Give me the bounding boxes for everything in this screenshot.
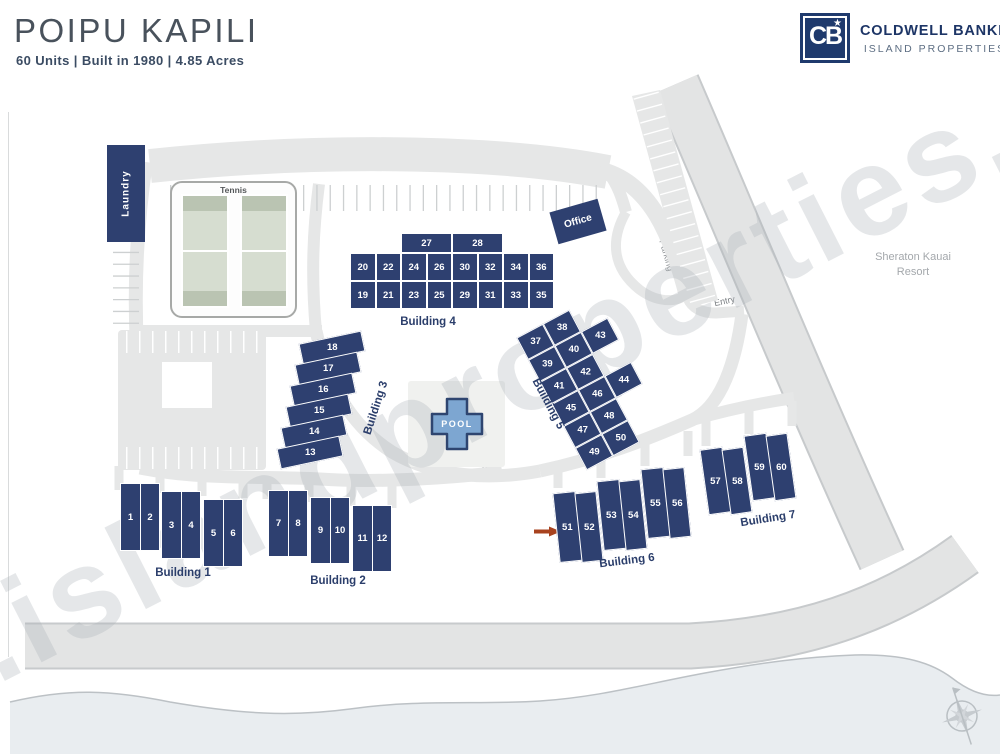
unit-number: 29 [459,290,470,301]
unit-number: 24 [408,262,419,273]
unit-28: 28 [452,233,503,253]
unit-7: 7 [268,490,289,557]
unit-number: 32 [485,262,496,273]
buildings-layer: 1234567891011125152535455565758596018171… [0,0,1000,754]
unit-number: 43 [595,330,606,341]
unit-9: 9 [310,497,331,564]
unit-number: 11 [357,533,367,544]
unit-1: 1 [120,483,141,551]
unit-number: 53 [606,510,617,521]
unit-number: 42 [580,366,591,377]
unit-number: 44 [618,374,629,385]
unit-number: 8 [295,518,300,529]
unit-number: 20 [357,262,368,273]
unit-number: 51 [562,522,573,533]
unit-5: 5 [203,499,224,567]
unit-number: 58 [732,476,743,487]
unit-number: 34 [510,262,521,273]
unit-number: 4 [188,520,193,531]
unit-6: 6 [223,499,243,567]
unit-22: 22 [376,253,402,281]
unit-number: 56 [672,498,683,509]
unit-number: 46 [592,388,603,399]
unit-number: 45 [565,403,576,414]
site-map: POIPU KAPILI 60 Units | Built in 1980 | … [0,0,1000,754]
unit-number: 21 [383,290,394,301]
unit-32: 32 [478,253,504,281]
unit-number: 48 [604,411,615,422]
unit-number: 57 [710,476,721,487]
unit-number: 2 [147,512,152,523]
unit-number: 47 [577,425,588,436]
building4-label: Building 4 [400,316,456,328]
unit-number: 17 [322,363,333,374]
unit-31: 31 [478,281,504,309]
unit-number: 55 [650,498,661,509]
unit-number: 14 [309,426,320,437]
unit-number: 60 [776,462,787,473]
unit-23: 23 [401,281,427,309]
unit-number: 36 [536,262,547,273]
unit-number: 31 [485,290,496,301]
unit-number: 28 [472,238,483,249]
building2-label: Building 2 [310,575,366,587]
unit-19: 19 [350,281,376,309]
unit-27: 27 [401,233,452,253]
unit-35: 35 [529,281,555,309]
unit-number: 54 [628,510,639,521]
unit-number: 59 [754,462,765,473]
unit-number: 52 [584,522,595,533]
unit-2: 2 [140,483,160,551]
unit-number: 39 [542,358,553,369]
unit-12: 12 [372,505,392,572]
unit-number: 37 [530,336,541,347]
unit-number: 25 [434,290,445,301]
unit-number: 23 [408,290,419,301]
unit-number: 18 [327,342,338,353]
unit-number: 16 [318,384,329,395]
unit-3: 3 [161,491,182,559]
unit-number: 19 [357,290,368,301]
unit-number: 22 [383,262,394,273]
unit-number: 15 [313,405,324,416]
unit-number: 26 [434,262,445,273]
unit-10: 10 [330,497,350,564]
unit-4: 4 [181,491,201,559]
unit-24: 24 [401,253,427,281]
unit-29: 29 [452,281,478,309]
unit-33: 33 [503,281,529,309]
unit-number: 6 [230,528,235,539]
unit-number: 33 [510,290,521,301]
unit-number: 38 [557,322,568,333]
unit-number: 49 [589,447,600,458]
unit-number: 13 [304,447,315,458]
unit-34: 34 [503,253,529,281]
unit-number: 5 [211,528,216,539]
unit-number: 7 [276,518,281,529]
unit-8: 8 [288,490,308,557]
unit-20: 20 [350,253,376,281]
building1-label: Building 1 [155,567,211,579]
unit-number: 35 [536,290,547,301]
unit-number: 10 [335,525,346,536]
unit-number: 40 [568,344,579,355]
unit-number: 41 [554,381,565,392]
unit-21: 21 [376,281,402,309]
unit-number: 27 [421,238,432,249]
unit-number: 1 [128,512,133,523]
unit-25: 25 [427,281,453,309]
unit-number: 3 [169,520,174,531]
unit-26: 26 [427,253,453,281]
unit-11: 11 [352,505,373,572]
unit-30: 30 [452,253,478,281]
unit-36: 36 [529,253,555,281]
unit-number: 9 [318,525,323,536]
unit-number: 12 [377,533,388,544]
unit-number: 30 [459,262,470,273]
unit-number: 50 [615,433,626,444]
